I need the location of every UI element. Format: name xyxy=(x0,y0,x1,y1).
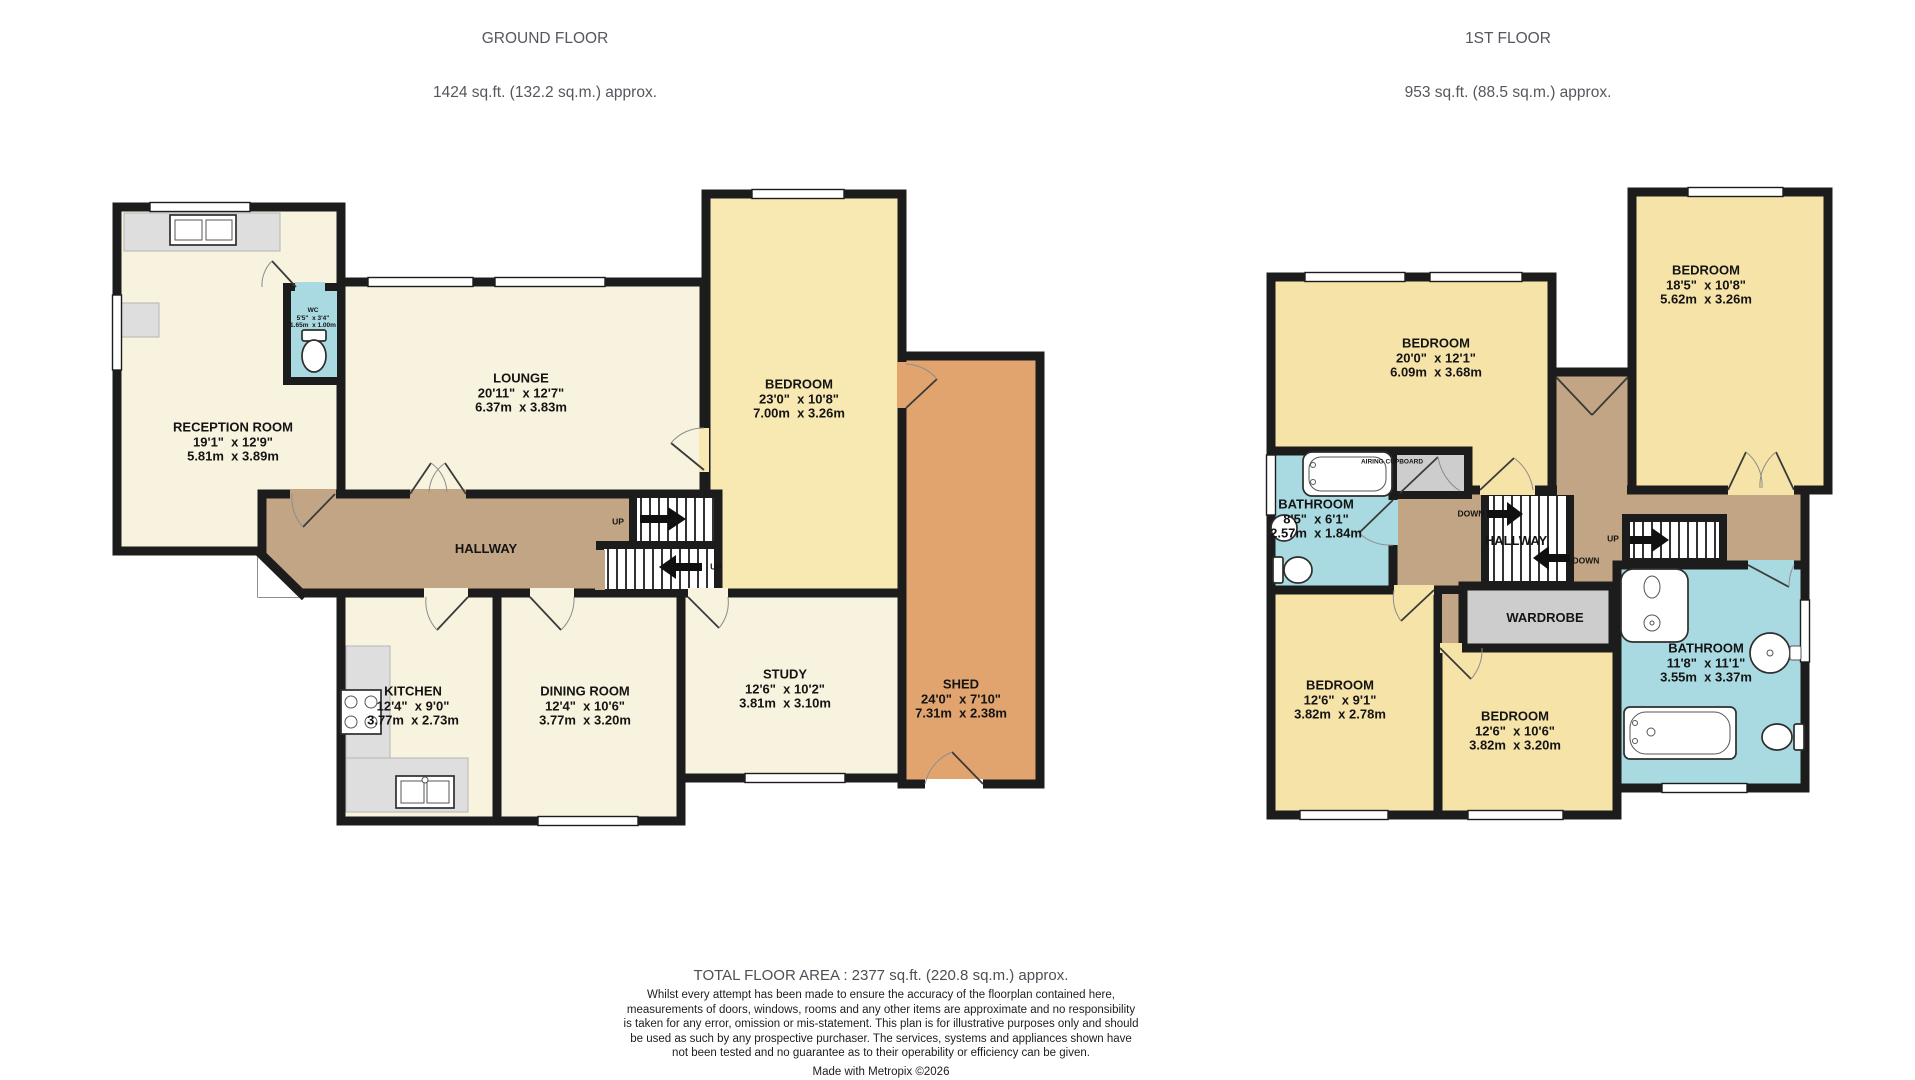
wc-label: WC5'5" x 3'4"1.65m x 1.00m xyxy=(290,292,336,345)
ff-bathroom1-label: BATHROOM8'5" x 6'1"2.57m x 1.84m xyxy=(1270,468,1362,570)
ff-up-label: UP xyxy=(1607,517,1619,562)
ff-bedroom3-label: BEDROOM12'6" x 9'1"3.82m x 2.78m xyxy=(1294,649,1386,751)
kitchen-label: KITCHEN12'4" x 9'0"3.77m x 2.73m xyxy=(367,655,459,757)
disclaimer-text: Whilst every attempt has been made to en… xyxy=(624,988,1139,1061)
ground-floor-title-line: GROUND FLOOR xyxy=(433,30,657,48)
first-floor-area: 953 sq.ft. (88.5 sq.m.) approx. xyxy=(1405,84,1612,102)
ground-floor-title: GROUND FLOOR 1424 sq.ft. (132.2 sq.m.) a… xyxy=(433,0,657,138)
total-floor-area: TOTAL FLOOR AREA : 2377 sq.ft. (220.8 sq… xyxy=(694,967,1069,985)
gf-bedroom-label: BEDROOM23'0" x 10'8"7.00m x 3.26m xyxy=(753,348,845,450)
dining-room-label: DINING ROOM12'4" x 10'6"3.77m x 3.20m xyxy=(539,655,631,757)
first-floor-title: 1ST FLOOR 953 sq.ft. (88.5 sq.m.) approx… xyxy=(1405,0,1612,138)
ff-hallway-label: HALLWAY xyxy=(1485,505,1547,578)
lounge-label: LOUNGE20'11" x 12'7"6.37m x 3.83m xyxy=(475,342,567,444)
ff-bedroom2-label: BEDROOM18'5" x 10'8"5.62m x 3.26m xyxy=(1660,234,1752,336)
credit-text: Made with Metropix ©2026 xyxy=(813,1066,950,1078)
ff-down-label: DOWN xyxy=(1458,492,1485,537)
airing-cupboard-label: AIRING CUPBOARD xyxy=(1361,443,1423,481)
ff-bathroom2-label: BATHROOM11'8" x 11'1"3.55m x 3.37m xyxy=(1660,612,1752,714)
gf-up-label: UP xyxy=(612,500,624,545)
ff-bedroom4-label: BEDROOM12'6" x 10'6"3.82m x 3.20m xyxy=(1469,680,1561,782)
labels-layer: GROUND FLOOR 1424 sq.ft. (132.2 sq.m.) a… xyxy=(0,0,1915,1080)
shed-label: SHED24'0" x 7'10"7.31m x 2.38m xyxy=(915,648,1007,750)
reception-room-label: RECEPTION ROOM19'1" x 12'9"5.81m x 3.89m xyxy=(173,391,293,493)
ff-bedroom1-label: BEDROOM20'0" x 12'1"6.09m x 3.68m xyxy=(1390,307,1482,409)
wardrobe-label: WARDROBE xyxy=(1506,582,1583,655)
first-floor-title-line: 1ST FLOOR xyxy=(1405,30,1612,48)
gf-hallway-label: HALLWAY xyxy=(455,513,517,586)
ground-floor-area: 1424 sq.ft. (132.2 sq.m.) approx. xyxy=(433,84,657,102)
ff-down-label: DOWN xyxy=(1573,539,1600,584)
floorplan-page: GROUND FLOOR 1424 sq.ft. (132.2 sq.m.) a… xyxy=(0,0,1915,1080)
gf-up-label: UP xyxy=(710,545,722,590)
study-label: STUDY12'6" x 10'2"3.81m x 3.10m xyxy=(739,638,831,740)
